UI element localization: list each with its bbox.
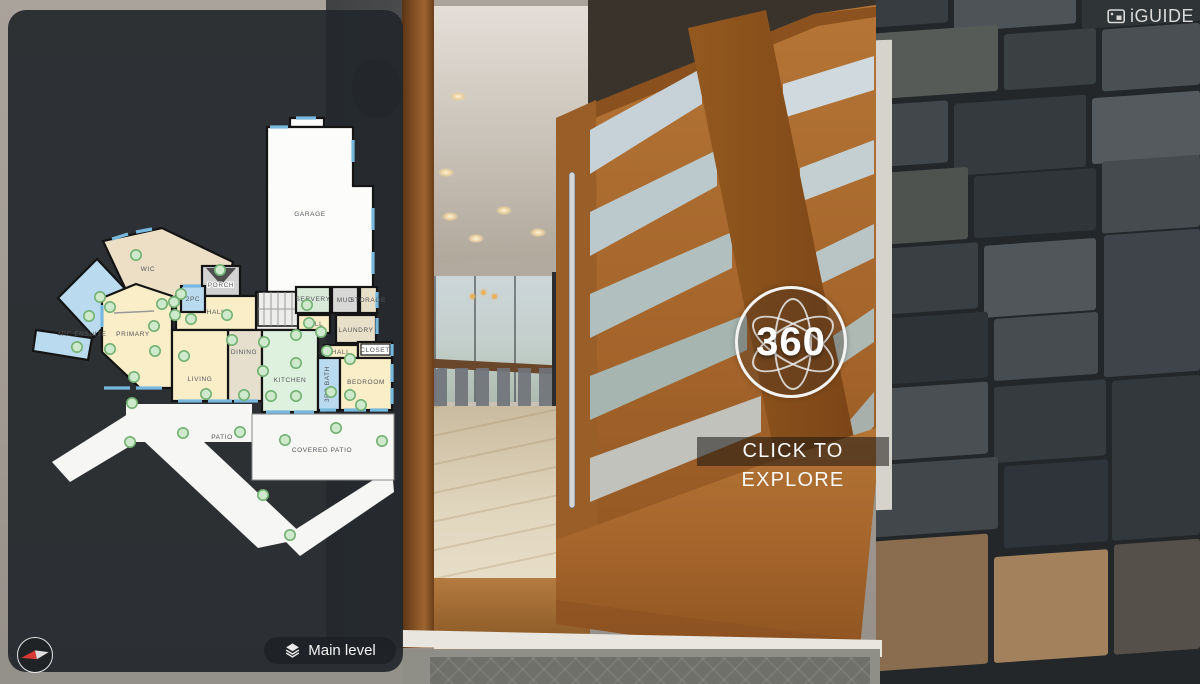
stone-blocks <box>876 0 1200 684</box>
stone-block <box>974 168 1096 239</box>
panorama-marker[interactable] <box>302 300 312 310</box>
stone-block <box>1004 28 1096 90</box>
panorama-marker[interactable] <box>105 344 115 354</box>
panorama-marker[interactable] <box>345 354 355 364</box>
label-servery: SERVERY <box>295 296 330 303</box>
panorama-marker[interactable] <box>345 390 355 400</box>
stone-block <box>876 25 998 101</box>
panorama-marker[interactable] <box>215 265 225 275</box>
panorama-marker[interactable] <box>127 398 137 408</box>
camera-icon <box>1107 8 1126 25</box>
stone-block <box>876 311 988 386</box>
label-powder: 2PC <box>186 296 200 303</box>
level-label: Main level <box>308 642 376 659</box>
label-laundry: LAUNDRY <box>338 327 373 334</box>
stone-block <box>1102 155 1200 234</box>
walkway <box>282 468 394 556</box>
panorama-marker[interactable] <box>125 437 135 447</box>
panorama-marker[interactable] <box>105 302 115 312</box>
panorama-marker[interactable] <box>291 391 301 401</box>
stone-block <box>984 238 1096 318</box>
panorama-marker[interactable] <box>316 327 326 337</box>
panorama-marker[interactable] <box>150 346 160 356</box>
layers-icon <box>284 642 301 659</box>
door-mat <box>430 657 870 684</box>
panorama-marker[interactable] <box>186 314 196 324</box>
panorama-marker[interactable] <box>239 390 249 400</box>
compass-needle-icon <box>18 638 52 672</box>
panorama-marker[interactable] <box>377 436 387 446</box>
stone-block <box>954 95 1086 176</box>
panorama-marker[interactable] <box>72 342 82 352</box>
compass[interactable] <box>17 637 53 673</box>
panorama-marker[interactable] <box>280 435 290 445</box>
level-selector-button[interactable]: Main level <box>264 637 396 664</box>
stone-block <box>1114 539 1200 655</box>
room-living <box>172 330 228 401</box>
stone-block <box>876 533 988 672</box>
panorama-marker[interactable] <box>304 318 314 328</box>
label-wic: WIC <box>141 266 155 273</box>
panorama-marker[interactable] <box>149 321 159 331</box>
panorama-marker[interactable] <box>129 372 139 382</box>
label-patio: PATIO <box>211 434 233 441</box>
door-handle <box>569 172 575 508</box>
stone-block <box>994 549 1108 663</box>
panorama-marker[interactable] <box>157 299 167 309</box>
floorplan: GARAGE WIC PORCH 2PC HALL SERVERY MUD ST… <box>8 10 403 672</box>
stone-block <box>994 312 1098 381</box>
panorama-marker[interactable] <box>356 400 366 410</box>
stone-block <box>876 457 998 538</box>
panorama-marker[interactable] <box>258 490 268 500</box>
label-dining: DINING <box>231 349 257 356</box>
panorama-marker[interactable] <box>84 311 94 321</box>
stone-block <box>1004 459 1108 548</box>
stone-block <box>1112 375 1200 541</box>
panorama-marker[interactable] <box>178 428 188 438</box>
click-to-explore[interactable]: CLICK TO EXPLORE <box>697 437 889 466</box>
panorama-marker[interactable] <box>235 427 245 437</box>
stone-block <box>1092 91 1200 165</box>
walkway <box>52 414 130 482</box>
label-storage: STORAGE <box>350 297 386 304</box>
stone-wall <box>876 0 1200 684</box>
label-bedroom: BEDROOM <box>347 379 385 386</box>
label-ensuite: 4PC ENSUITE <box>57 331 106 338</box>
panorama-marker[interactable] <box>201 389 211 399</box>
label-living: LIVING <box>188 376 213 383</box>
logo-text: iGUIDE <box>1130 6 1194 27</box>
panorama-marker[interactable] <box>285 530 295 540</box>
panorama-marker[interactable] <box>259 337 269 347</box>
stone-block <box>1104 229 1200 378</box>
stone-block <box>876 381 988 462</box>
panorama-marker[interactable] <box>291 330 301 340</box>
panorama-marker[interactable] <box>331 423 341 433</box>
label-garage: GARAGE <box>294 211 325 218</box>
panorama-marker[interactable] <box>170 310 180 320</box>
panorama-marker[interactable] <box>176 289 186 299</box>
panorama-marker[interactable] <box>227 335 237 345</box>
panorama-marker[interactable] <box>95 292 105 302</box>
label-covered-patio: COVERED PATIO <box>292 447 352 454</box>
panorama-marker[interactable] <box>322 346 332 356</box>
badge-360[interactable]: 360 <box>733 284 849 400</box>
panorama-marker[interactable] <box>222 310 232 320</box>
panorama-marker[interactable] <box>326 387 336 397</box>
panorama-marker[interactable] <box>266 391 276 401</box>
stone-block <box>876 0 948 29</box>
label-primary: PRIMARY <box>116 331 150 338</box>
panorama-marker[interactable] <box>179 351 189 361</box>
panorama-marker[interactable] <box>131 250 141 260</box>
label-kitchen: KITCHEN <box>274 377 307 384</box>
panorama-marker[interactable] <box>258 366 268 376</box>
panorama-marker[interactable] <box>291 358 301 368</box>
badge-360-label: 360 <box>733 284 849 400</box>
stone-block <box>1102 23 1200 92</box>
iguide-logo[interactable]: iGUIDE <box>1107 6 1194 27</box>
room-garage <box>267 127 373 292</box>
stone-block <box>994 379 1106 463</box>
label-closet: CLOSET <box>360 347 390 354</box>
label-porch: PORCH <box>208 282 234 289</box>
